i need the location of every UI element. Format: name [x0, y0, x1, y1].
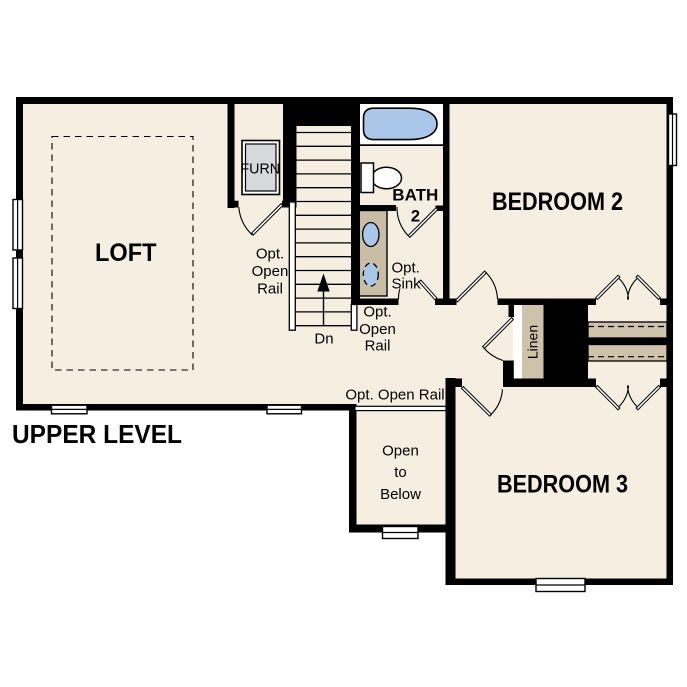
svg-text:FURN: FURN [241, 161, 281, 178]
svg-text:Dn: Dn [314, 331, 333, 348]
svg-text:Open: Open [252, 263, 289, 280]
svg-text:Sink: Sink [392, 276, 422, 293]
svg-text:to: to [394, 464, 407, 481]
svg-text:Open: Open [382, 443, 419, 460]
svg-text:UPPER LEVEL: UPPER LEVEL [12, 419, 182, 449]
svg-text:2: 2 [411, 208, 420, 226]
svg-text:Linen: Linen [525, 325, 541, 359]
svg-text:BEDROOM 3: BEDROOM 3 [497, 471, 628, 499]
svg-text:BATH: BATH [392, 187, 438, 205]
svg-text:Open: Open [359, 321, 396, 338]
svg-text:Opt.: Opt. [256, 246, 284, 263]
svg-text:Rail: Rail [365, 338, 391, 355]
svg-text:LOFT: LOFT [95, 239, 157, 267]
svg-text:Opt.: Opt. [363, 304, 391, 321]
svg-text:BEDROOM 2: BEDROOM 2 [492, 188, 623, 216]
svg-text:Opt. Open Rail: Opt. Open Rail [345, 387, 444, 404]
svg-text:Rail: Rail [257, 281, 283, 298]
svg-text:Below: Below [380, 486, 421, 503]
svg-text:Opt.: Opt. [392, 260, 420, 277]
